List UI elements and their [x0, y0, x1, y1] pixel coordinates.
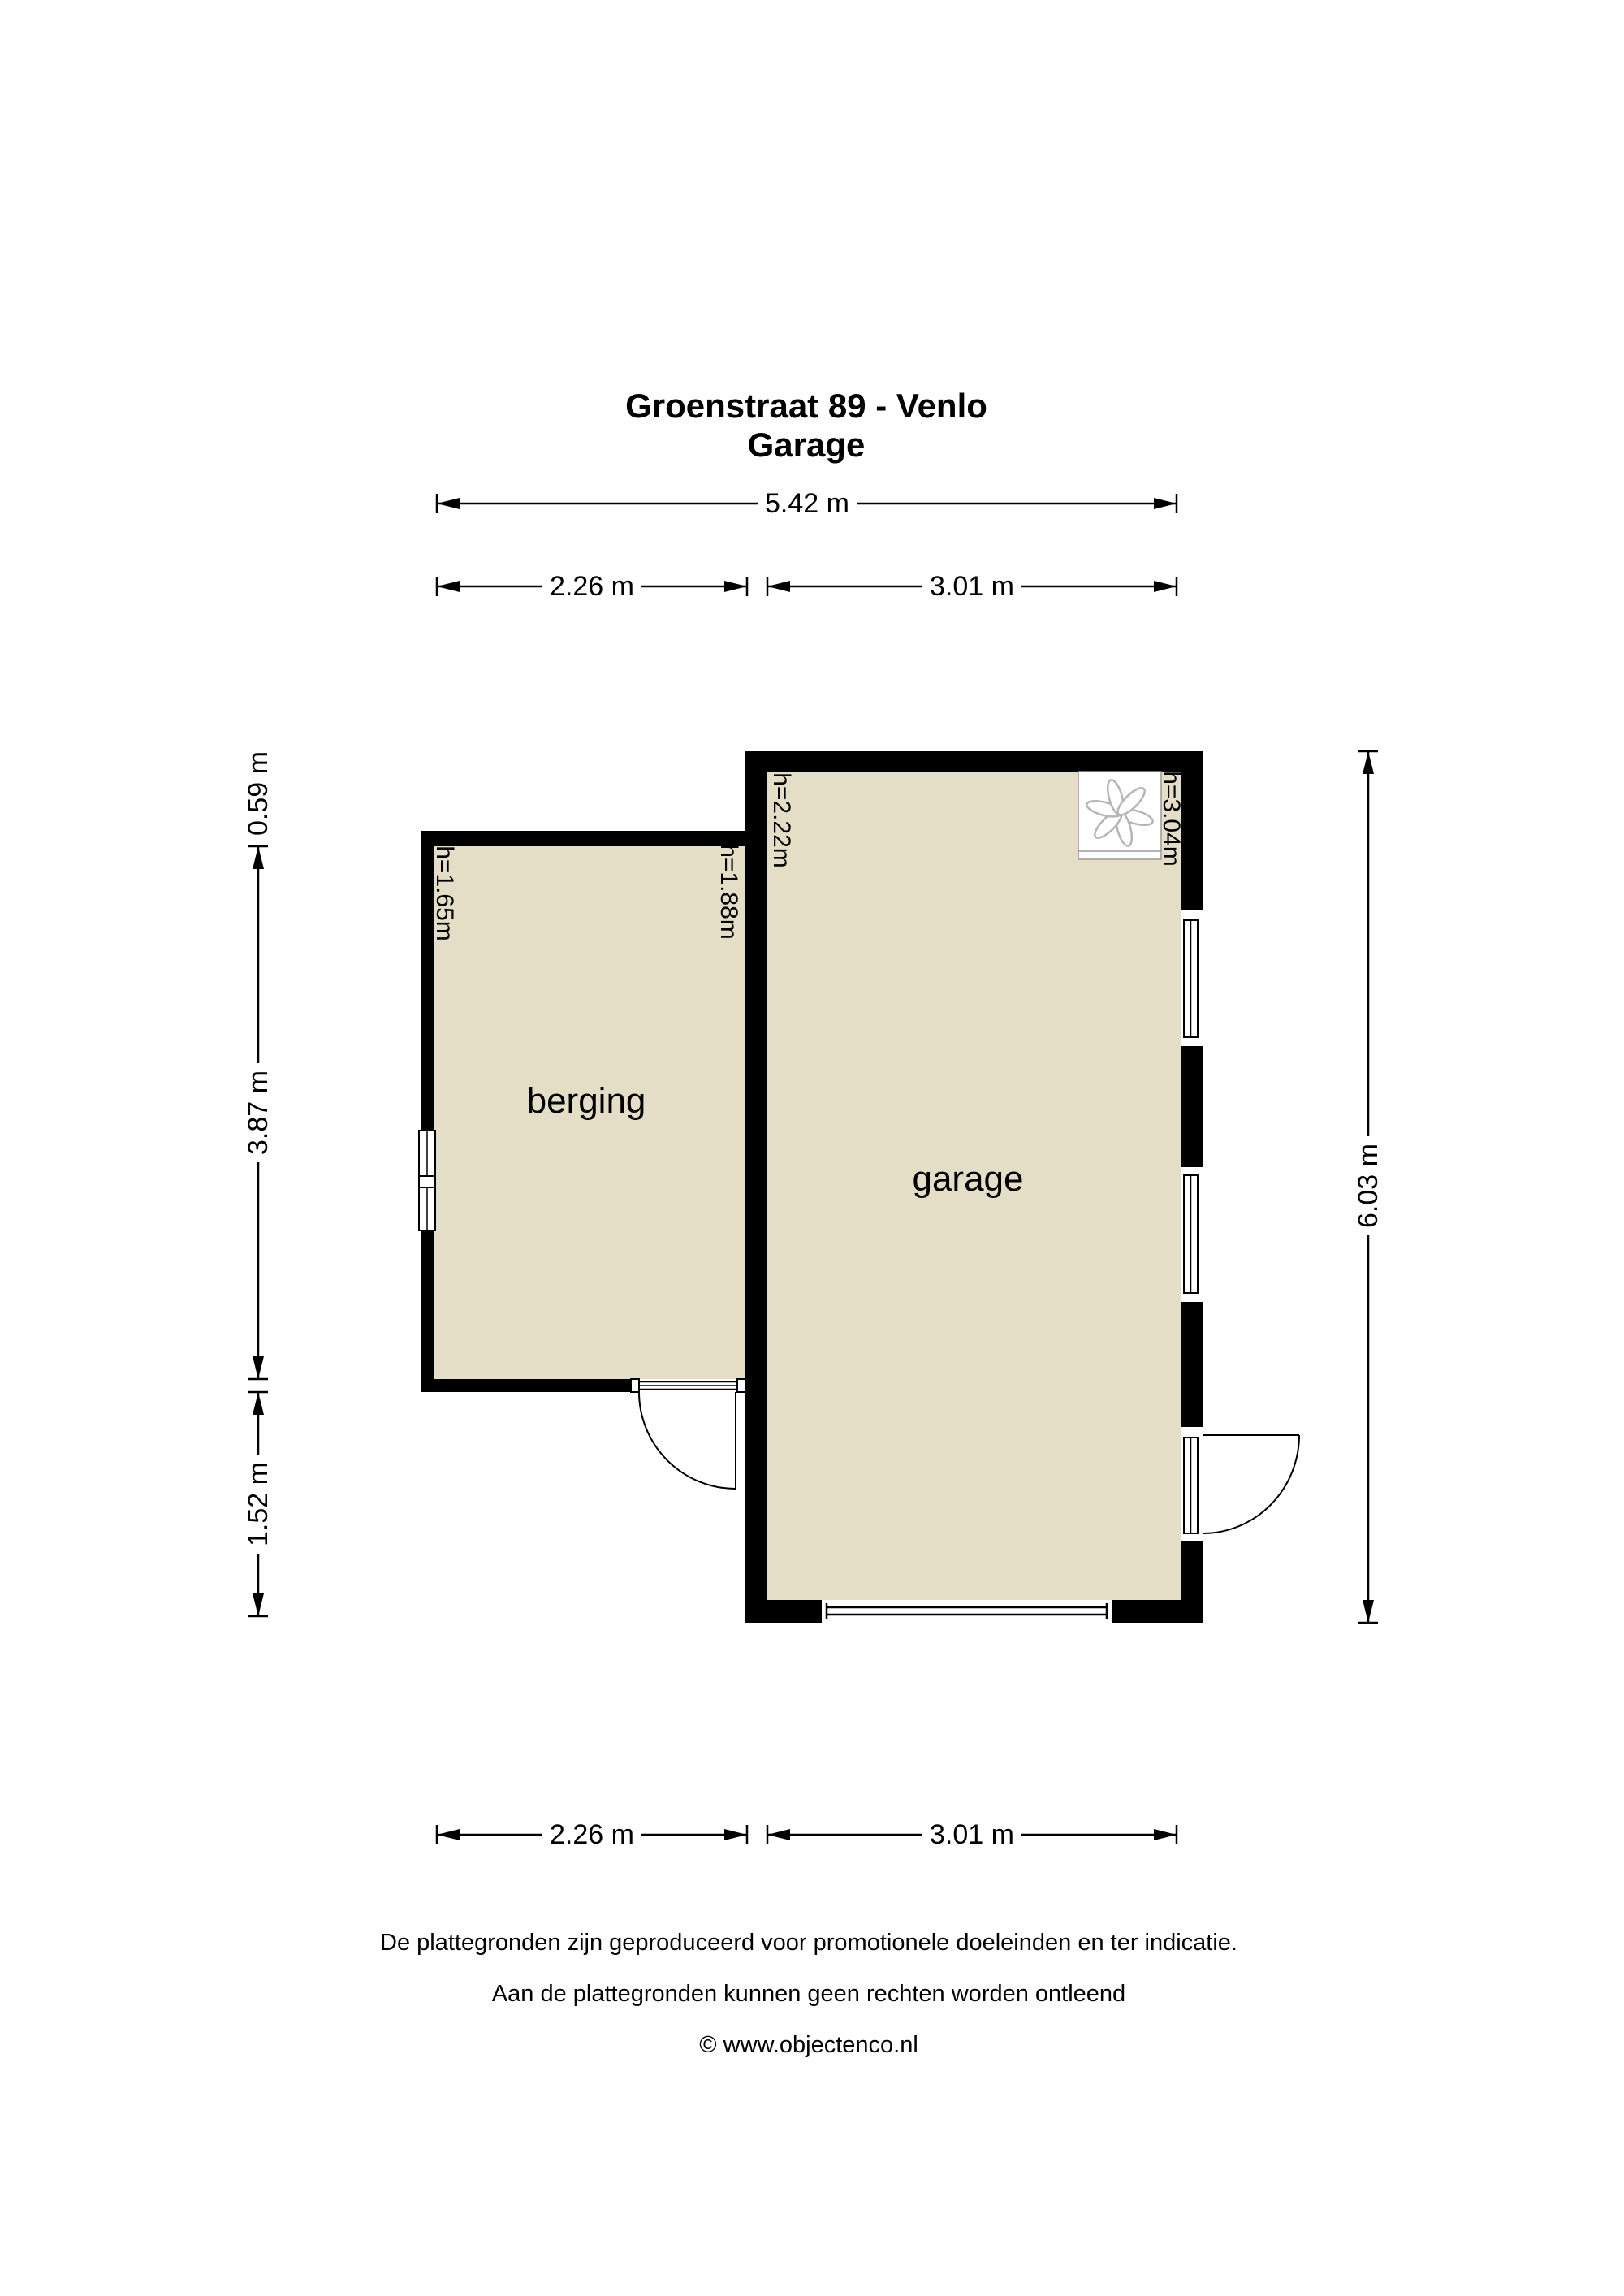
berging-left-wall-lower — [421, 1230, 434, 1392]
berging-bottom-wall — [421, 1379, 631, 1392]
garage-top-wall — [745, 751, 1203, 772]
dim-label-top-right: 3.01 m — [922, 571, 1021, 602]
dim-label-bottom-left: 2.26 m — [542, 1819, 641, 1850]
garage-overhead-door — [827, 1603, 1107, 1619]
floor-plan-page: Groenstraat 89 - Venlo Garage 5.42 m 2.2… — [0, 0, 1624, 2296]
door-swing-arc — [639, 1392, 736, 1489]
ventilation-fan-icon — [1078, 772, 1161, 859]
garage-right-wall-segment — [1181, 1046, 1203, 1167]
garage-window-1 — [1181, 910, 1203, 1046]
room-label-garage: garage — [912, 1160, 1023, 1199]
footer-line-1: De plattegronden zijn geproduceerd voor … — [380, 1918, 1237, 1969]
dim-label-left-mid: 3.87 m — [243, 1063, 274, 1162]
berging-top-wall — [421, 831, 745, 846]
dim-label-bottom-right: 3.01 m — [922, 1819, 1021, 1850]
dim-label-right-total: 6.03 m — [1353, 1136, 1384, 1235]
garage-right-wall-segment — [1181, 1302, 1203, 1427]
garage-side-door — [1181, 1427, 1299, 1541]
dim-label-left-top: 0.59 m — [243, 744, 274, 843]
garage-bottom-wall-left — [745, 1600, 822, 1623]
height-label-garage-right: h=3.04m — [1159, 771, 1183, 867]
berging-window — [419, 1131, 435, 1230]
garage-bottom-wall-right — [1112, 1600, 1203, 1623]
dim-label-top-total: 5.42 m — [758, 488, 857, 519]
height-label-berging-left: h=1.65m — [432, 845, 456, 941]
room-floors — [434, 772, 1181, 1600]
garage-window-2 — [1181, 1167, 1203, 1302]
berging-door — [631, 1379, 745, 1489]
dim-label-top-left: 2.26 m — [542, 571, 641, 602]
height-label-garage-left: h=2.22m — [769, 772, 793, 868]
footer-copyright: © www.objectenco.nl — [380, 2020, 1237, 2071]
plan-title-subtitle: Garage — [625, 426, 987, 465]
footer-disclaimer: De plattegronden zijn geproduceerd voor … — [380, 1918, 1237, 2071]
height-label-berging-right: h=1.88m — [716, 844, 741, 940]
room-label-berging: berging — [527, 1082, 646, 1121]
door-swing-arc — [1203, 1435, 1299, 1533]
plan-title: Groenstraat 89 - Venlo Garage — [625, 387, 987, 465]
footer-line-2: Aan de plattegronden kunnen geen rechten… — [380, 1969, 1237, 2020]
garage-left-wall — [745, 751, 767, 1623]
plan-title-address: Groenstraat 89 - Venlo — [625, 387, 987, 426]
dim-label-left-bottom: 1.52 m — [243, 1455, 274, 1554]
